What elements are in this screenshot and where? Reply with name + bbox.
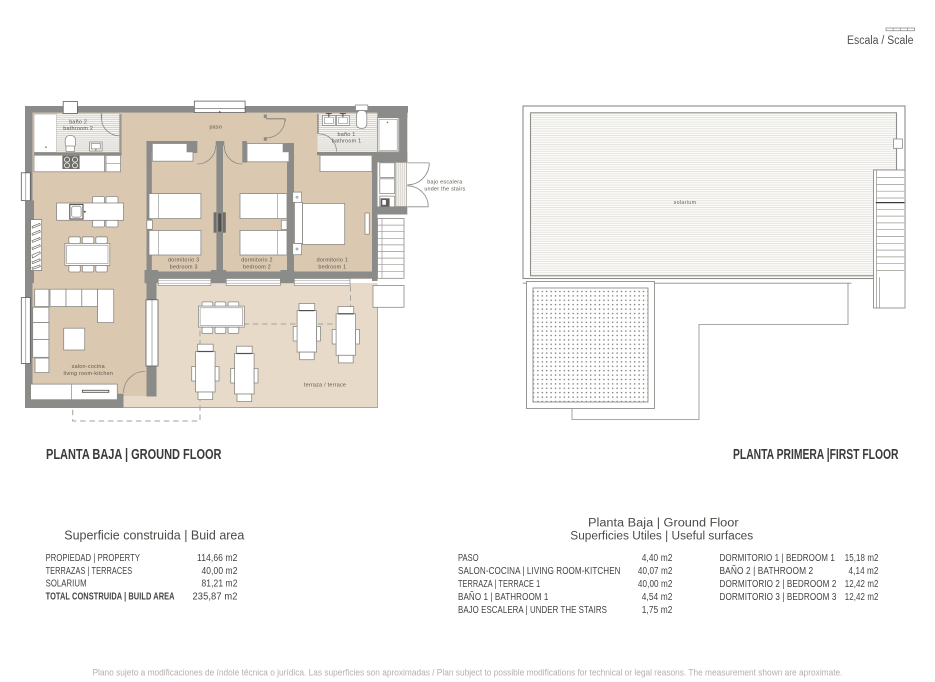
svg-text:114,66 m2: 114,66 m2	[197, 553, 238, 564]
svg-text:DORMITORIO 3 | BEDROOM 3: DORMITORIO 3 | BEDROOM 3	[720, 592, 837, 603]
svg-text:bedroom 3: bedroom 3	[170, 264, 198, 270]
svg-text:1,75 m2: 1,75 m2	[642, 605, 673, 616]
svg-text:PLANTA BAJA | GROUND FLOOR: PLANTA BAJA | GROUND FLOOR	[46, 447, 222, 463]
svg-text:Planta Baja | Ground Floor: Planta Baja | Ground Floor	[588, 518, 739, 530]
svg-text:BAÑO 1 | BATHROOM 1: BAÑO 1 | BATHROOM 1	[458, 592, 549, 603]
svg-text:40,07 m2: 40,07 m2	[638, 566, 673, 577]
svg-text:4,54 m2: 4,54 m2	[642, 592, 673, 603]
svg-text:DORMITORIO 1 | BEDROOM 1: DORMITORIO 1 | BEDROOM 1	[720, 553, 835, 564]
svg-text:PASO: PASO	[458, 553, 479, 564]
svg-text:Plano sujeto a modificaciones: Plano sujeto a modificaciones de índole …	[93, 668, 843, 678]
svg-text:under the stairs: under the stairs	[424, 187, 465, 193]
svg-text:4,40 m2: 4,40 m2	[642, 553, 673, 564]
svg-text:81,21 m2: 81,21 m2	[202, 579, 238, 590]
svg-text:SOLARIUM: SOLARIUM	[46, 579, 87, 590]
svg-text:DORMITORIO 2 | BEDROOM 2: DORMITORIO 2 | BEDROOM 2	[720, 579, 837, 590]
svg-text:solarium: solarium	[674, 200, 697, 206]
svg-text:dormitorio 3: dormitorio 3	[168, 258, 199, 264]
svg-text:bathroom 1: bathroom 1	[332, 139, 362, 145]
svg-text:PLANTA PRIMERA |FIRST FLOOR: PLANTA PRIMERA |FIRST FLOOR	[733, 447, 899, 463]
svg-text:BAJO ESCALERA | UNDER THE STAI: BAJO ESCALERA | UNDER THE STAIRS	[458, 605, 607, 616]
svg-text:PROPIEDAD | PROPERTY: PROPIEDAD | PROPERTY	[46, 553, 141, 564]
svg-text:Superficies Utiles | Useful su: Superficies Utiles | Useful surfaces	[570, 530, 753, 542]
svg-text:SALON-COCINA | LIVING ROOM-KIT: SALON-COCINA | LIVING ROOM-KITCHEN	[458, 566, 621, 577]
svg-text:dormitorio 1: dormitorio 1	[317, 258, 348, 264]
svg-text:baño 1: baño 1	[338, 132, 356, 138]
svg-text:bajo escalera: bajo escalera	[427, 180, 462, 186]
svg-text:TERRAZAS | TERRACES: TERRAZAS | TERRACES	[46, 566, 133, 577]
svg-text:bedroom 2: bedroom 2	[243, 264, 271, 270]
svg-text:12,42 m2: 12,42 m2	[845, 579, 879, 590]
svg-text:40,00 m2: 40,00 m2	[638, 579, 673, 590]
svg-text:Superficie construida | Buid a: Superficie construida | Buid area	[64, 528, 245, 543]
svg-text:TOTAL CONSTRUIDA | BUILD AREA: TOTAL CONSTRUIDA | BUILD AREA	[46, 592, 175, 603]
svg-text:baño 2: baño 2	[69, 119, 87, 125]
svg-text:4,14 m2: 4,14 m2	[849, 566, 879, 577]
svg-text:bedroom 1: bedroom 1	[318, 264, 346, 270]
svg-text:salon-cocina: salon-cocina	[72, 364, 105, 370]
svg-text:terraza / terrace: terraza / terrace	[304, 383, 346, 389]
svg-text:TERRAZA | TERRACE 1: TERRAZA | TERRACE 1	[458, 579, 540, 590]
svg-text:paso: paso	[209, 125, 222, 131]
svg-text:235,87 m2: 235,87 m2	[193, 592, 238, 603]
svg-text:dormitorio 2: dormitorio 2	[241, 258, 272, 264]
svg-text:bathroom 2: bathroom 2	[63, 126, 93, 132]
svg-text:12,42 m2: 12,42 m2	[845, 592, 879, 603]
svg-text:BAÑO 2 | BATHROOM 2: BAÑO 2 | BATHROOM 2	[720, 566, 814, 577]
svg-text:living room-kitchen: living room-kitchen	[63, 371, 113, 377]
svg-text:15,18 m2: 15,18 m2	[845, 553, 879, 564]
svg-text:Escala / Scale: Escala / Scale	[847, 35, 914, 47]
svg-text:40,00 m2: 40,00 m2	[202, 566, 238, 577]
